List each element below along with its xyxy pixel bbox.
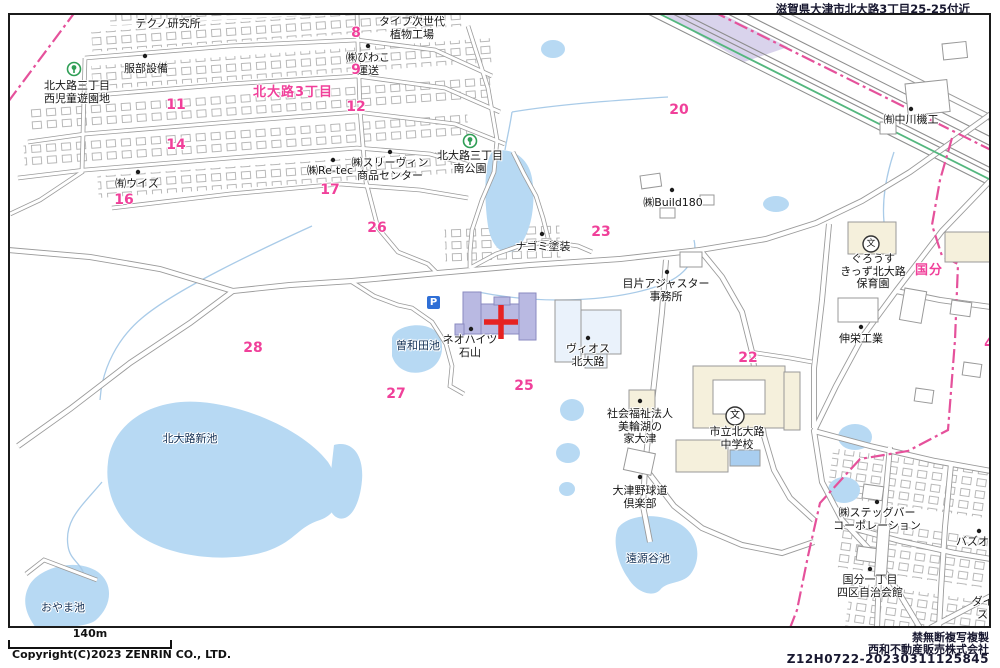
block-number: 12 bbox=[346, 99, 365, 115]
poi-label: 伸栄工業 bbox=[839, 333, 883, 346]
map-canvas: P 文 文 テクノ研究所 服部設備 北大路三丁目 西児童遊園地 タイプ次世代 植… bbox=[8, 13, 991, 628]
block-number: 8 bbox=[351, 25, 361, 41]
pond-label: 遠源谷池 bbox=[626, 553, 670, 566]
map-frame[interactable]: P 文 文 テクノ研究所 服部設備 北大路三丁目 西児童遊園地 タイプ次世代 植… bbox=[8, 13, 991, 628]
poi-label: ぐろうす きっず北大路 保育園 bbox=[840, 253, 906, 291]
poi-label: ダイヤ スタ bbox=[966, 596, 991, 621]
pond-label: おやま池 bbox=[41, 602, 85, 615]
poi-label: ネオハイツ 石山 bbox=[443, 334, 498, 359]
school-icon-glyph: 文 bbox=[866, 238, 875, 251]
poi-label: 北大路三丁目 西児童遊園地 bbox=[44, 80, 110, 105]
poi-label: ナゴミ塗装 bbox=[516, 241, 571, 254]
block-number: 16 bbox=[114, 192, 133, 208]
parking-icon-glyph: P bbox=[430, 297, 437, 310]
poi-label: 北大路三丁目 南公園 bbox=[437, 150, 503, 175]
poi-label: ㈲中川機工 bbox=[884, 114, 939, 127]
poi-label: テクノ研究所 bbox=[135, 18, 200, 31]
block-number: 14 bbox=[166, 137, 185, 153]
poi-label: 国分一丁目 四区自治会館 bbox=[837, 574, 903, 599]
poi-label: ㈱ステッグバー コーポレーション bbox=[833, 507, 921, 532]
poi-label: ㈱Build180 bbox=[643, 197, 703, 210]
poi-label: 市立北大路 中学校 bbox=[710, 426, 765, 451]
poi-label: 大津野球道 倶楽部 bbox=[613, 485, 668, 510]
block-number: 25 bbox=[514, 378, 533, 394]
poi-label: バズオー bbox=[956, 536, 991, 549]
document-code: Z12H0722-20230311125845 bbox=[787, 652, 989, 666]
poi-label: ㈱スリーヴィン 商品センター bbox=[352, 157, 429, 182]
block-number: 20 bbox=[669, 102, 688, 118]
pond-label: 曽和田池 bbox=[396, 340, 440, 353]
block-number: 17 bbox=[320, 182, 339, 198]
pond-label: 北大路新池 bbox=[163, 433, 218, 446]
map-viewport: 滋賀県大津市北大路3丁目25-25付近 bbox=[0, 0, 1000, 668]
poi-label: タイプ次世代 植物工場 bbox=[379, 16, 445, 41]
district-label: 国分 bbox=[915, 259, 943, 278]
poi-label: 目片アジャスター 事務所 bbox=[622, 278, 709, 303]
block-number: 23 bbox=[591, 224, 610, 240]
copyright-text: Copyright(C)2023 ZENRIN CO., LTD. bbox=[12, 648, 231, 661]
map-graphics bbox=[8, 13, 991, 628]
poi-label: 服部設備 bbox=[124, 63, 168, 76]
poi-label: ヴィオス 北大路 bbox=[566, 343, 610, 368]
poi-label: ㈲ウイズ bbox=[115, 178, 159, 191]
block-number: 28 bbox=[243, 340, 262, 356]
block-number: 4 bbox=[984, 336, 991, 352]
block-number: 26 bbox=[367, 220, 386, 236]
poi-label: 社会福祉法人 美輪湖の 家大津 bbox=[607, 408, 673, 446]
school-icon-glyph: 文 bbox=[730, 410, 740, 423]
block-number: 22 bbox=[738, 350, 757, 366]
district-label: 北大路3丁目 bbox=[253, 81, 333, 100]
block-number: 11 bbox=[166, 97, 185, 113]
scale-label: 140m bbox=[40, 627, 140, 640]
block-number: 27 bbox=[386, 386, 405, 402]
block-number: 9 bbox=[351, 62, 361, 78]
poi-label: ㈱Re-tec bbox=[307, 165, 353, 178]
